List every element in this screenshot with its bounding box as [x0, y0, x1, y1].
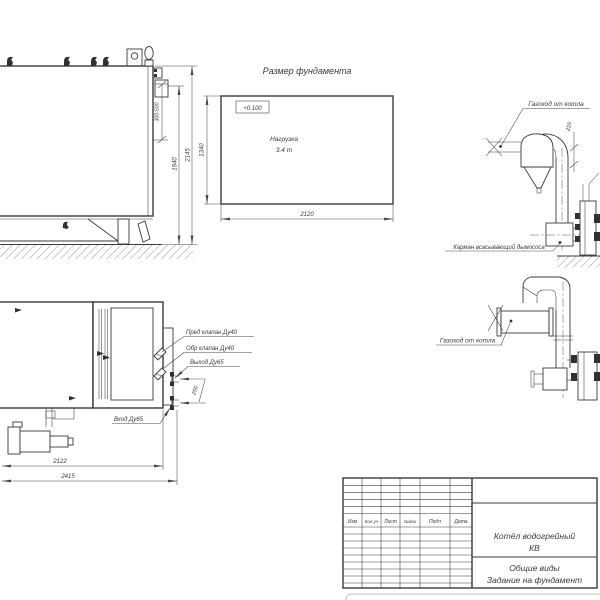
- product-name-line1: Котёл водогрейный: [494, 531, 575, 541]
- boiler-body-side: [0, 47, 168, 217]
- dim-1340: 1340: [200, 143, 206, 157]
- header-izm: Изм: [348, 519, 358, 525]
- check-valve-label: Обр клапан Ду40: [186, 346, 235, 352]
- dim-2145: 2145: [186, 148, 192, 163]
- door-panel: [111, 308, 153, 400]
- dim-300-500: 300-500: [155, 102, 161, 121]
- header-ndok: №док: [404, 519, 417, 524]
- elevation-mark: +0.100: [243, 106, 262, 112]
- product-name-line2: КВ: [529, 543, 540, 553]
- title-block: Изм Кол.уч Лист №док Подп Дата Котёл вод…: [343, 478, 597, 588]
- doc-type-line2: Задание на фундамент: [487, 575, 582, 585]
- boiler-foundation-drawing: 300-500 1940 2145 Размер фундамента +0.1…: [0, 0, 600, 600]
- foundation-title: Размер фундамента: [263, 66, 352, 76]
- fan-inlet-box: [543, 368, 567, 390]
- outlet-label: Выход Ду65: [190, 360, 224, 366]
- inlet-label: Вход Ду65: [114, 417, 144, 423]
- suction-pocket-label: Карман всасывающий дымососа: [453, 244, 545, 251]
- ground-hatch-fan: [557, 257, 600, 268]
- gas-duct-label: Газоход от котла: [528, 100, 584, 108]
- load-label: Нагрузка: [270, 136, 298, 143]
- gas-duct-label: Газоход от котла: [440, 337, 496, 345]
- dim-2120: 2120: [299, 212, 314, 218]
- header-list: Лист: [383, 519, 397, 525]
- ground-hatch-side: [0, 245, 193, 260]
- foundation-outline: [221, 96, 393, 204]
- dim-2122: 2122: [52, 459, 67, 465]
- dim-2415: 2415: [60, 474, 75, 480]
- safety-valve-label: Пред клапан Ду40: [186, 330, 238, 336]
- header-koluch: Кол.уч: [365, 519, 379, 524]
- header-podp: Подп: [429, 519, 441, 525]
- doc-type-line1: Общие виды: [509, 563, 560, 573]
- load-value: 3.4 т: [276, 147, 293, 154]
- dim-1940: 1940: [173, 157, 179, 171]
- boiler-body-plan: [0, 302, 93, 408]
- header-data: Дата: [453, 519, 467, 525]
- door-frame: [93, 302, 163, 408]
